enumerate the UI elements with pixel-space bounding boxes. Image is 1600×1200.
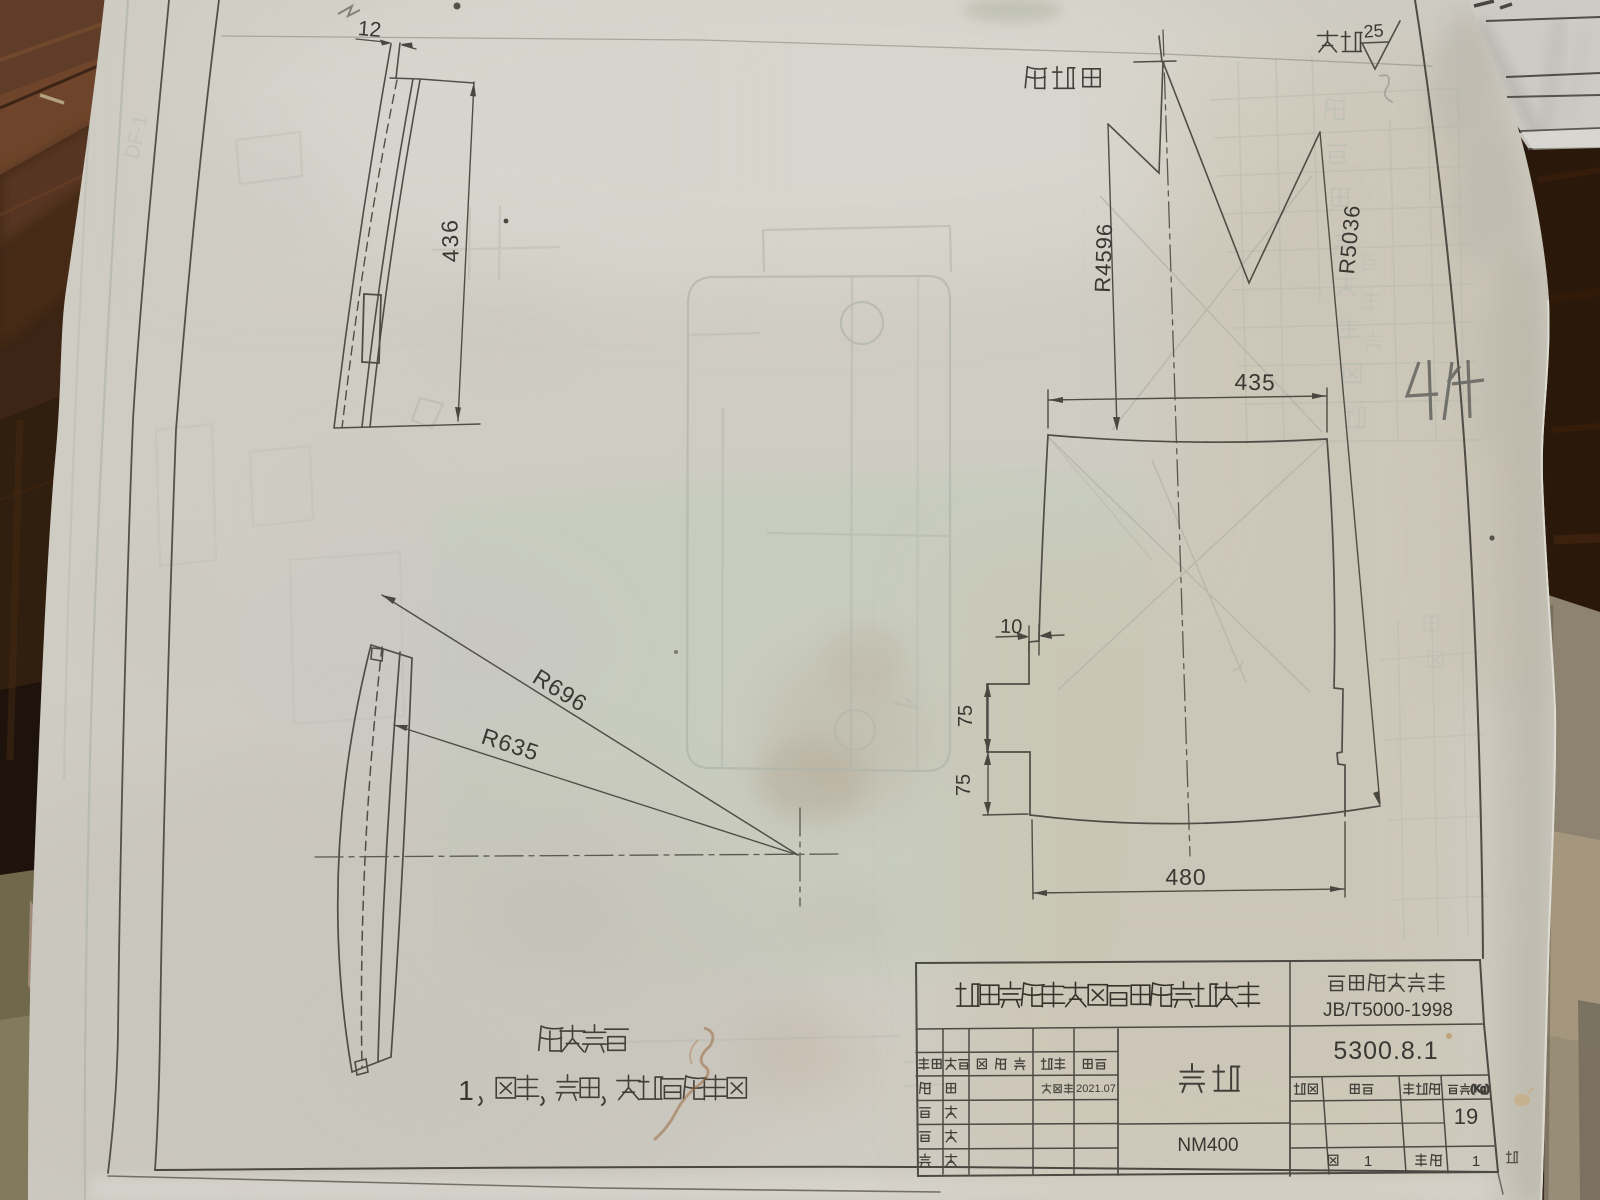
svg-text:10: 10 <box>1000 616 1023 639</box>
svg-text:2021.07: 2021.07 <box>1076 1083 1116 1095</box>
svg-text:5300.8.1: 5300.8.1 <box>1333 1037 1438 1065</box>
svg-text:NM400: NM400 <box>1177 1135 1238 1156</box>
svg-text:75: 75 <box>955 705 977 727</box>
svg-text:R4596: R4596 <box>1090 222 1117 293</box>
svg-text:75: 75 <box>953 774 975 796</box>
svg-text:JB/T5000-1998: JB/T5000-1998 <box>1323 1000 1453 1021</box>
svg-text:1: 1 <box>1364 1153 1372 1170</box>
svg-text:436: 436 <box>436 218 464 263</box>
svg-text:25: 25 <box>1363 20 1384 41</box>
svg-text:19: 19 <box>1454 1104 1478 1129</box>
svg-text:1: 1 <box>1472 1153 1480 1170</box>
svg-text:1: 1 <box>458 1075 474 1106</box>
svg-text:(Kg): (Kg) <box>1471 1084 1490 1095</box>
svg-text:12: 12 <box>357 17 382 42</box>
svg-text:435: 435 <box>1234 369 1276 396</box>
svg-text:480: 480 <box>1165 864 1206 890</box>
